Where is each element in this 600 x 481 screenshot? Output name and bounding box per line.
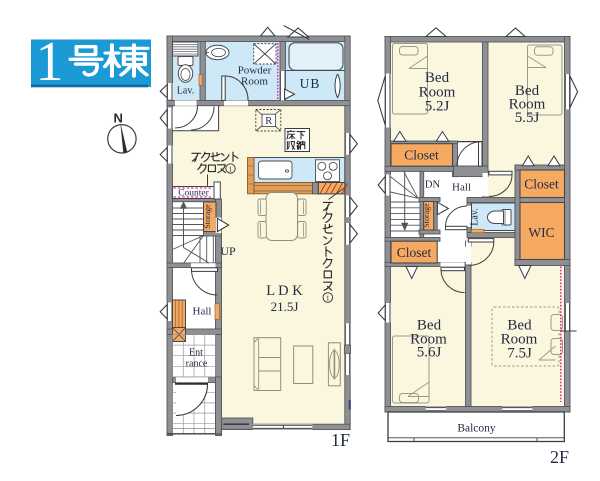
svg-text:7.5J: 7.5J bbox=[507, 346, 532, 362]
svg-text:1: 1 bbox=[326, 293, 330, 302]
svg-text:1: 1 bbox=[229, 164, 233, 173]
svg-text:Storage: Storage bbox=[422, 203, 431, 228]
svg-text:Balcony: Balcony bbox=[457, 423, 496, 435]
svg-text:Closet: Closet bbox=[524, 177, 559, 192]
svg-text:Ent: Ent bbox=[189, 348, 203, 359]
svg-text:1F: 1F bbox=[331, 430, 350, 450]
svg-text:Room: Room bbox=[241, 76, 268, 88]
svg-text:rance: rance bbox=[186, 359, 208, 370]
svg-text:UB: UB bbox=[300, 76, 321, 91]
svg-text:1: 1 bbox=[36, 31, 64, 93]
svg-text:DN: DN bbox=[425, 180, 441, 191]
svg-text:Closet: Closet bbox=[397, 245, 432, 260]
svg-text:L D K: L D K bbox=[266, 283, 303, 299]
svg-text:Lav.: Lav. bbox=[470, 208, 481, 225]
svg-text:5.2J: 5.2J bbox=[425, 99, 450, 115]
svg-text:N: N bbox=[114, 111, 123, 126]
svg-text:Lav.: Lav. bbox=[177, 86, 194, 97]
svg-text:Closet: Closet bbox=[404, 147, 439, 162]
svg-text:5.5J: 5.5J bbox=[515, 110, 540, 126]
svg-text:Hall: Hall bbox=[193, 306, 212, 318]
svg-text:R: R bbox=[265, 116, 272, 127]
svg-text:UP: UP bbox=[220, 244, 236, 258]
svg-text:Counter: Counter bbox=[178, 189, 209, 199]
svg-text:Hall: Hall bbox=[452, 182, 471, 194]
svg-text:5.6J: 5.6J bbox=[417, 345, 442, 361]
svg-text:21.5J: 21.5J bbox=[271, 299, 299, 314]
svg-text:Storage: Storage bbox=[203, 204, 212, 229]
svg-text:WIC: WIC bbox=[528, 225, 554, 240]
svg-text:2F: 2F bbox=[550, 447, 569, 467]
